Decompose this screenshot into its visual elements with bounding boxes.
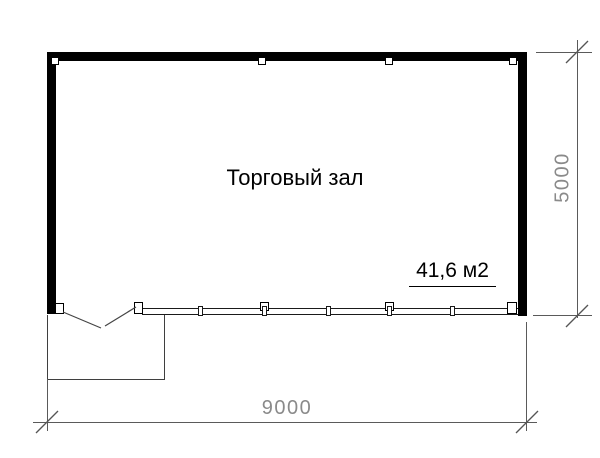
extension-line-bottom-left — [47, 379, 48, 431]
column-post — [51, 57, 59, 65]
window-post — [507, 302, 517, 314]
mullion-tick — [450, 306, 455, 316]
dimension-line-height — [577, 40, 578, 318]
wall-right — [518, 52, 527, 316]
mullion-tick — [262, 306, 267, 316]
diagonal-lines-layer — [0, 0, 600, 458]
dimension-line-width — [33, 422, 537, 423]
extension-line-bottom-right — [526, 322, 527, 431]
door-jamb-left — [55, 303, 64, 314]
mullion-tick — [326, 306, 331, 316]
extension-line-right-top — [536, 52, 592, 53]
mullion-tick — [198, 306, 203, 316]
column-post — [509, 57, 517, 65]
dimension-height-label: 5000 — [552, 128, 575, 228]
door-jamb-right — [134, 302, 143, 314]
extension-line-right-bottom — [533, 315, 592, 316]
room-name-label: Торговый зал — [200, 165, 390, 191]
floor-plan: Торговый зал 41,6 м2 9000 5000 — [0, 0, 600, 458]
dimension-width-label: 9000 — [237, 397, 337, 420]
room-area-label: 41,6 м2 — [409, 259, 496, 287]
wall-top — [47, 52, 527, 61]
wall-left — [47, 52, 56, 314]
mullion-tick — [387, 306, 392, 316]
entrance-porch — [47, 315, 165, 380]
column-post — [385, 57, 393, 65]
column-post — [258, 57, 266, 65]
